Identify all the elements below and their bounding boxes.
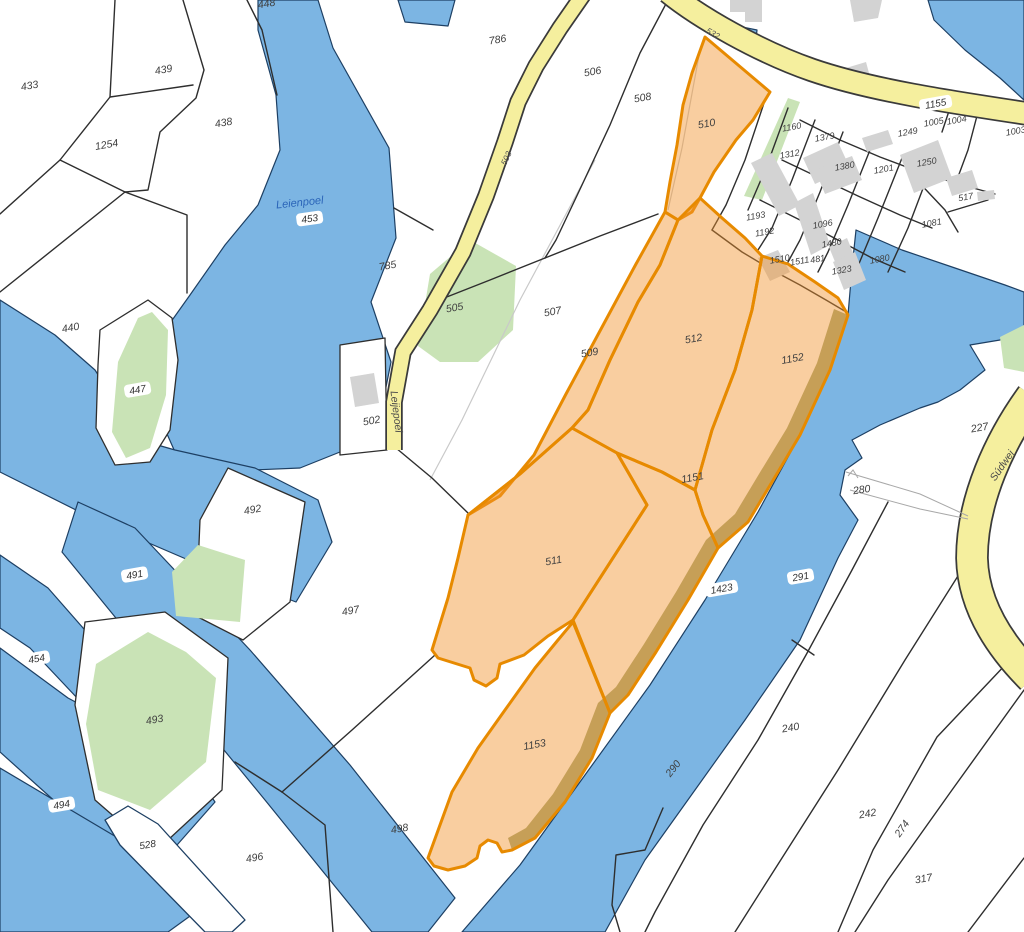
building — [350, 373, 379, 407]
cadastral-map-viewport[interactable]: 4334394381254448Leienpoel453786785506508… — [0, 0, 1024, 932]
cadastral-map-canvas[interactable]: 4334394381254448Leienpoel453786785506508… — [0, 0, 1024, 932]
top-pond[interactable] — [398, 0, 455, 26]
